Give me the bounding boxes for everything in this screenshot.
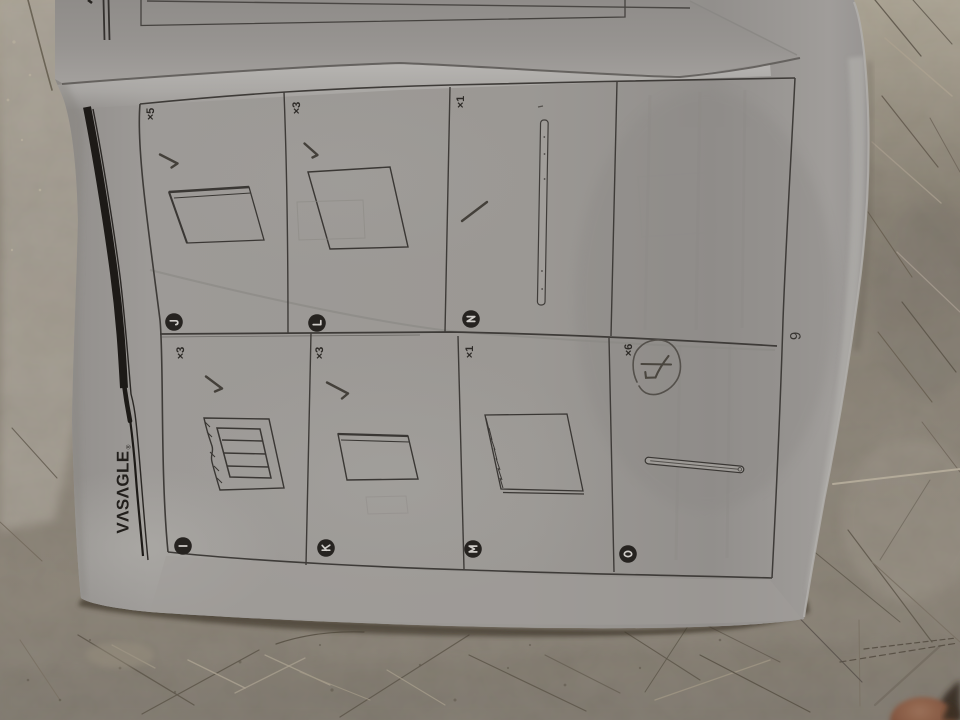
svg-text:VΛSΛGLE: VΛSΛGLE: [114, 450, 133, 533]
svg-text:×3: ×3: [175, 347, 187, 360]
svg-text:×1: ×1: [464, 346, 476, 359]
svg-text:×6: ×6: [623, 344, 635, 357]
svg-text:×5: ×5: [145, 108, 157, 121]
svg-text:®: ®: [126, 444, 133, 449]
svg-text:×3: ×3: [314, 347, 326, 360]
svg-text:9: 9: [788, 332, 805, 340]
svg-text:×1: ×1: [455, 96, 467, 109]
svg-text:×3: ×3: [291, 102, 303, 115]
